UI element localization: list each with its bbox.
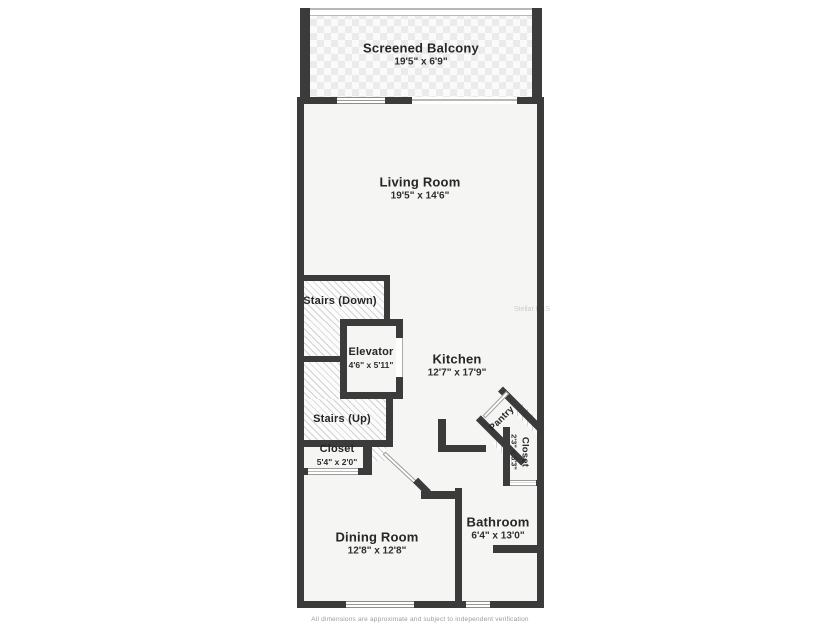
wall-exterior-left [297, 97, 304, 608]
wall-elevator-left [340, 319, 347, 399]
room-label-bathroom: Bathroom 6'4" x 13'0" [467, 515, 530, 544]
bath-closet-door [510, 480, 536, 486]
wall-closet-right [363, 447, 372, 468]
closet-door [308, 468, 358, 475]
mls-watermark: Stellar MLS [514, 306, 550, 313]
wall-kitchen-bottom [438, 445, 486, 452]
wall-elevator-top [340, 319, 403, 326]
room-label-closet-hall: Closet 5'4" x 2'0" [317, 443, 357, 467]
room-label-stairs-down: Stairs (Down) [303, 295, 377, 309]
room-label-closet-bath: Closet 2'3" x 5'3" [509, 434, 530, 470]
stairs-up-hatch [304, 362, 340, 399]
floorplan-canvas: Screened Balcony 19'5" x 6'9" Living Roo… [0, 0, 840, 630]
wall-dining-stub [421, 491, 458, 499]
wall-exterior-bottom [297, 601, 544, 608]
room-label-elevator: Elevator 4'6" x 5'11" [348, 346, 393, 370]
room-label-kitchen: Kitchen 12'7" x 17'9" [428, 352, 487, 381]
disclaimer-text: All dimensions are approximate and subje… [0, 616, 840, 623]
wall-elevator-bottom [340, 392, 403, 399]
wall-dining-bathroom [455, 488, 462, 601]
wall-bathroom-stub [493, 545, 544, 553]
wall-exterior-right [537, 97, 544, 608]
bathroom-window [466, 601, 490, 608]
wall-balcony-right [532, 8, 542, 102]
wall-balcony-left [300, 8, 310, 102]
room-label-stairs-up: Stairs (Up) [313, 413, 371, 427]
stairs-down-hatch [304, 321, 340, 356]
dining-room-window [346, 601, 414, 608]
balcony-screen [310, 8, 532, 16]
elevator-door [396, 338, 403, 377]
room-label-dining-room: Dining Room 12'8" x 12'8" [335, 530, 418, 559]
living-room-window [337, 97, 385, 104]
wall-stairs-divider [297, 356, 341, 362]
wall-stairs-down-top [297, 275, 390, 281]
room-label-screened-balcony: Screened Balcony 19'5" x 6'9" [363, 41, 479, 70]
wall-stairs-down-right [384, 275, 390, 323]
room-label-living-room: Living Room 19'5" x 14'6" [380, 175, 461, 204]
wall-balcony-living [385, 97, 412, 104]
slider-opening [412, 99, 517, 101]
